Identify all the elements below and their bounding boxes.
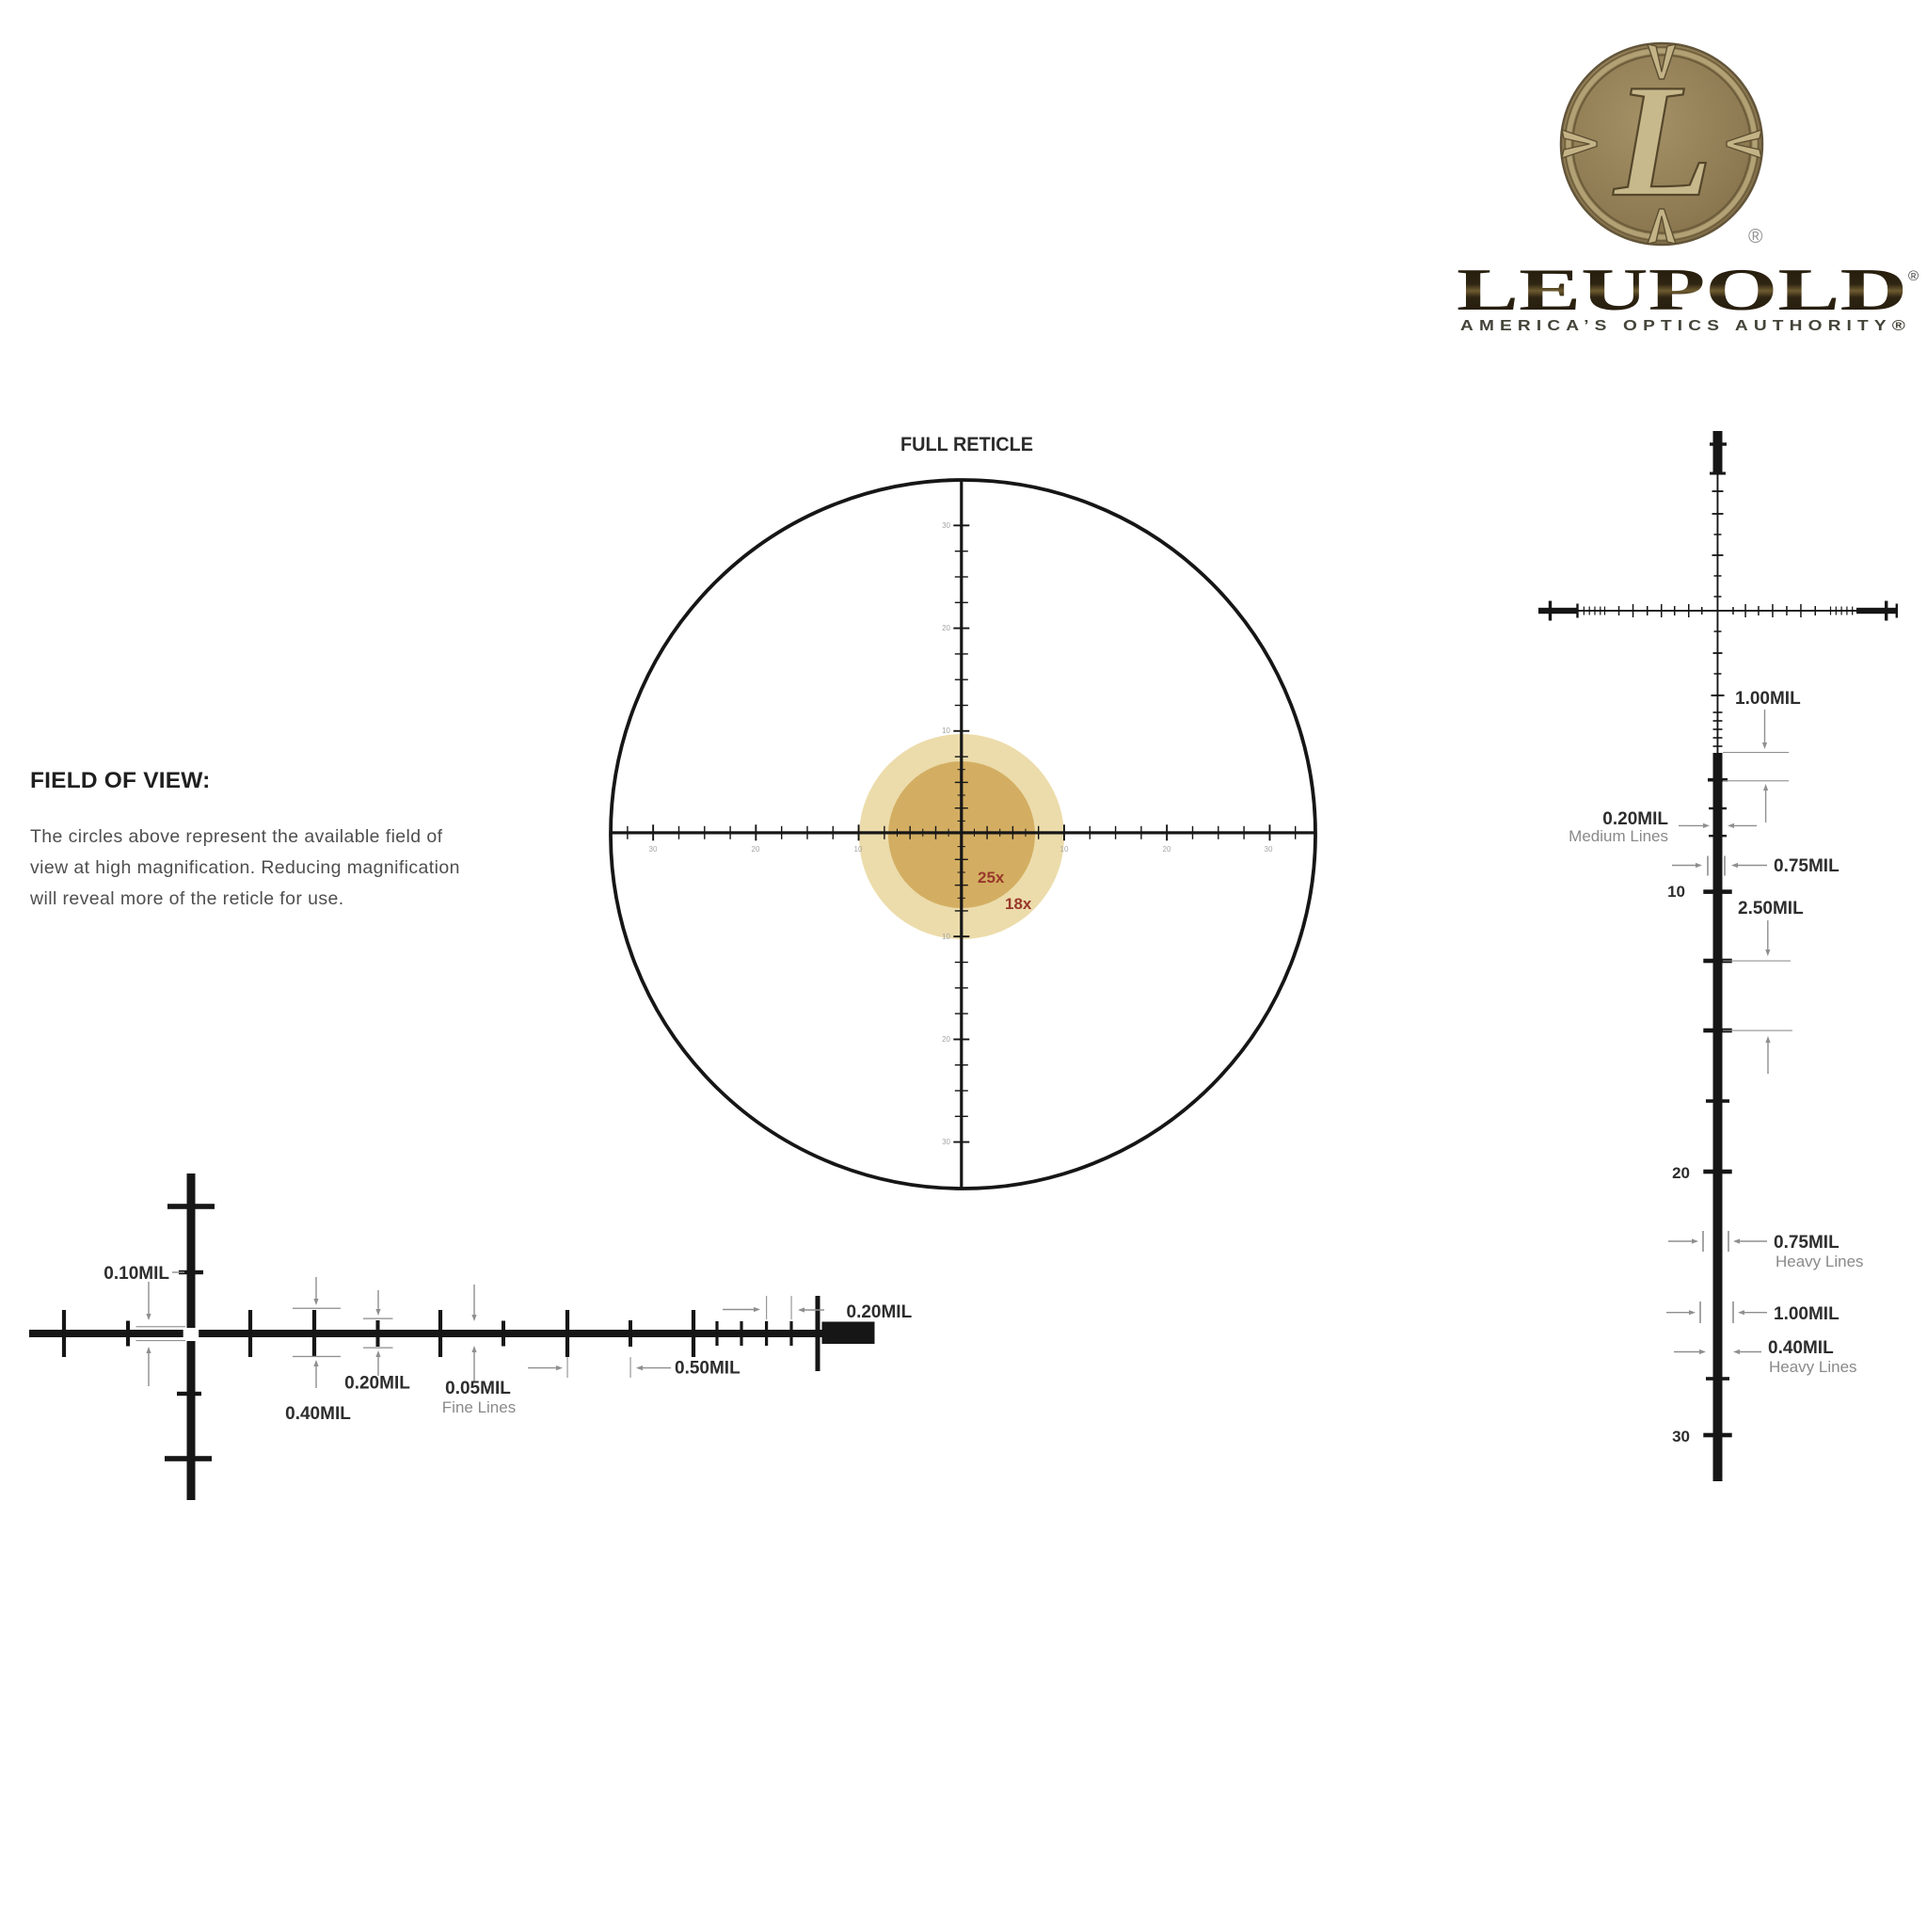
svg-text:0.40MIL: 0.40MIL — [1768, 1338, 1834, 1358]
svg-text:25x: 25x — [978, 869, 1005, 886]
svg-text:30: 30 — [942, 521, 950, 530]
svg-text:30: 30 — [1265, 845, 1273, 854]
svg-text:30: 30 — [942, 1138, 950, 1146]
svg-text:20: 20 — [752, 845, 760, 854]
svg-text:0.75MIL: 0.75MIL — [1774, 856, 1839, 876]
svg-text:10: 10 — [942, 933, 950, 941]
svg-text:0.75MIL: 0.75MIL — [1774, 1233, 1839, 1253]
svg-text:10: 10 — [942, 726, 950, 735]
svg-text:®: ® — [1748, 226, 1763, 247]
svg-text:1.00MIL: 1.00MIL — [1774, 1304, 1839, 1324]
svg-text:FULL RETICLE: FULL RETICLE — [900, 434, 1033, 455]
svg-text:30: 30 — [1672, 1428, 1690, 1445]
svg-text:Heavy Lines: Heavy Lines — [1776, 1253, 1864, 1270]
svg-text:FIELD OF VIEW:: FIELD OF VIEW: — [30, 768, 211, 793]
svg-text:0.05MIL: 0.05MIL — [445, 1379, 511, 1398]
svg-text:0.40MIL: 0.40MIL — [285, 1404, 351, 1424]
svg-text:Fine Lines: Fine Lines — [442, 1398, 516, 1416]
svg-text:0.50MIL: 0.50MIL — [675, 1359, 741, 1379]
svg-text:10: 10 — [1667, 883, 1685, 901]
svg-text:view at high magnification. Re: view at high magnification. Reducing mag… — [30, 857, 460, 878]
svg-text:10: 10 — [1060, 845, 1069, 854]
svg-text:®: ® — [1908, 268, 1919, 284]
svg-text:LEUPOLD: LEUPOLD — [1457, 256, 1907, 323]
svg-text:Medium Lines: Medium Lines — [1569, 827, 1668, 845]
svg-text:2.50MIL: 2.50MIL — [1738, 899, 1804, 918]
svg-text:L: L — [1612, 52, 1712, 231]
svg-text:0.20MIL: 0.20MIL — [1602, 809, 1668, 829]
svg-text:0.10MIL: 0.10MIL — [104, 1264, 169, 1284]
svg-text:30: 30 — [649, 845, 658, 854]
svg-text:20: 20 — [1672, 1164, 1690, 1182]
svg-text:1.00MIL: 1.00MIL — [1735, 689, 1801, 709]
svg-text:AMERICA’S OPTICS AUTHORITY®: AMERICA’S OPTICS AUTHORITY® — [1460, 318, 1911, 334]
svg-text:20: 20 — [1163, 845, 1171, 854]
svg-text:0.20MIL: 0.20MIL — [344, 1374, 410, 1394]
svg-text:0.20MIL: 0.20MIL — [847, 1302, 913, 1322]
svg-text:20: 20 — [942, 624, 950, 632]
svg-text:18x: 18x — [1005, 895, 1032, 913]
svg-text:Heavy Lines: Heavy Lines — [1769, 1358, 1857, 1376]
svg-text:will reveal more of the reticl: will reveal more of the reticle for use. — [29, 888, 344, 909]
svg-text:20: 20 — [942, 1035, 950, 1044]
svg-text:The circles above represent th: The circles above represent the availabl… — [30, 826, 443, 847]
svg-text:10: 10 — [854, 845, 863, 854]
